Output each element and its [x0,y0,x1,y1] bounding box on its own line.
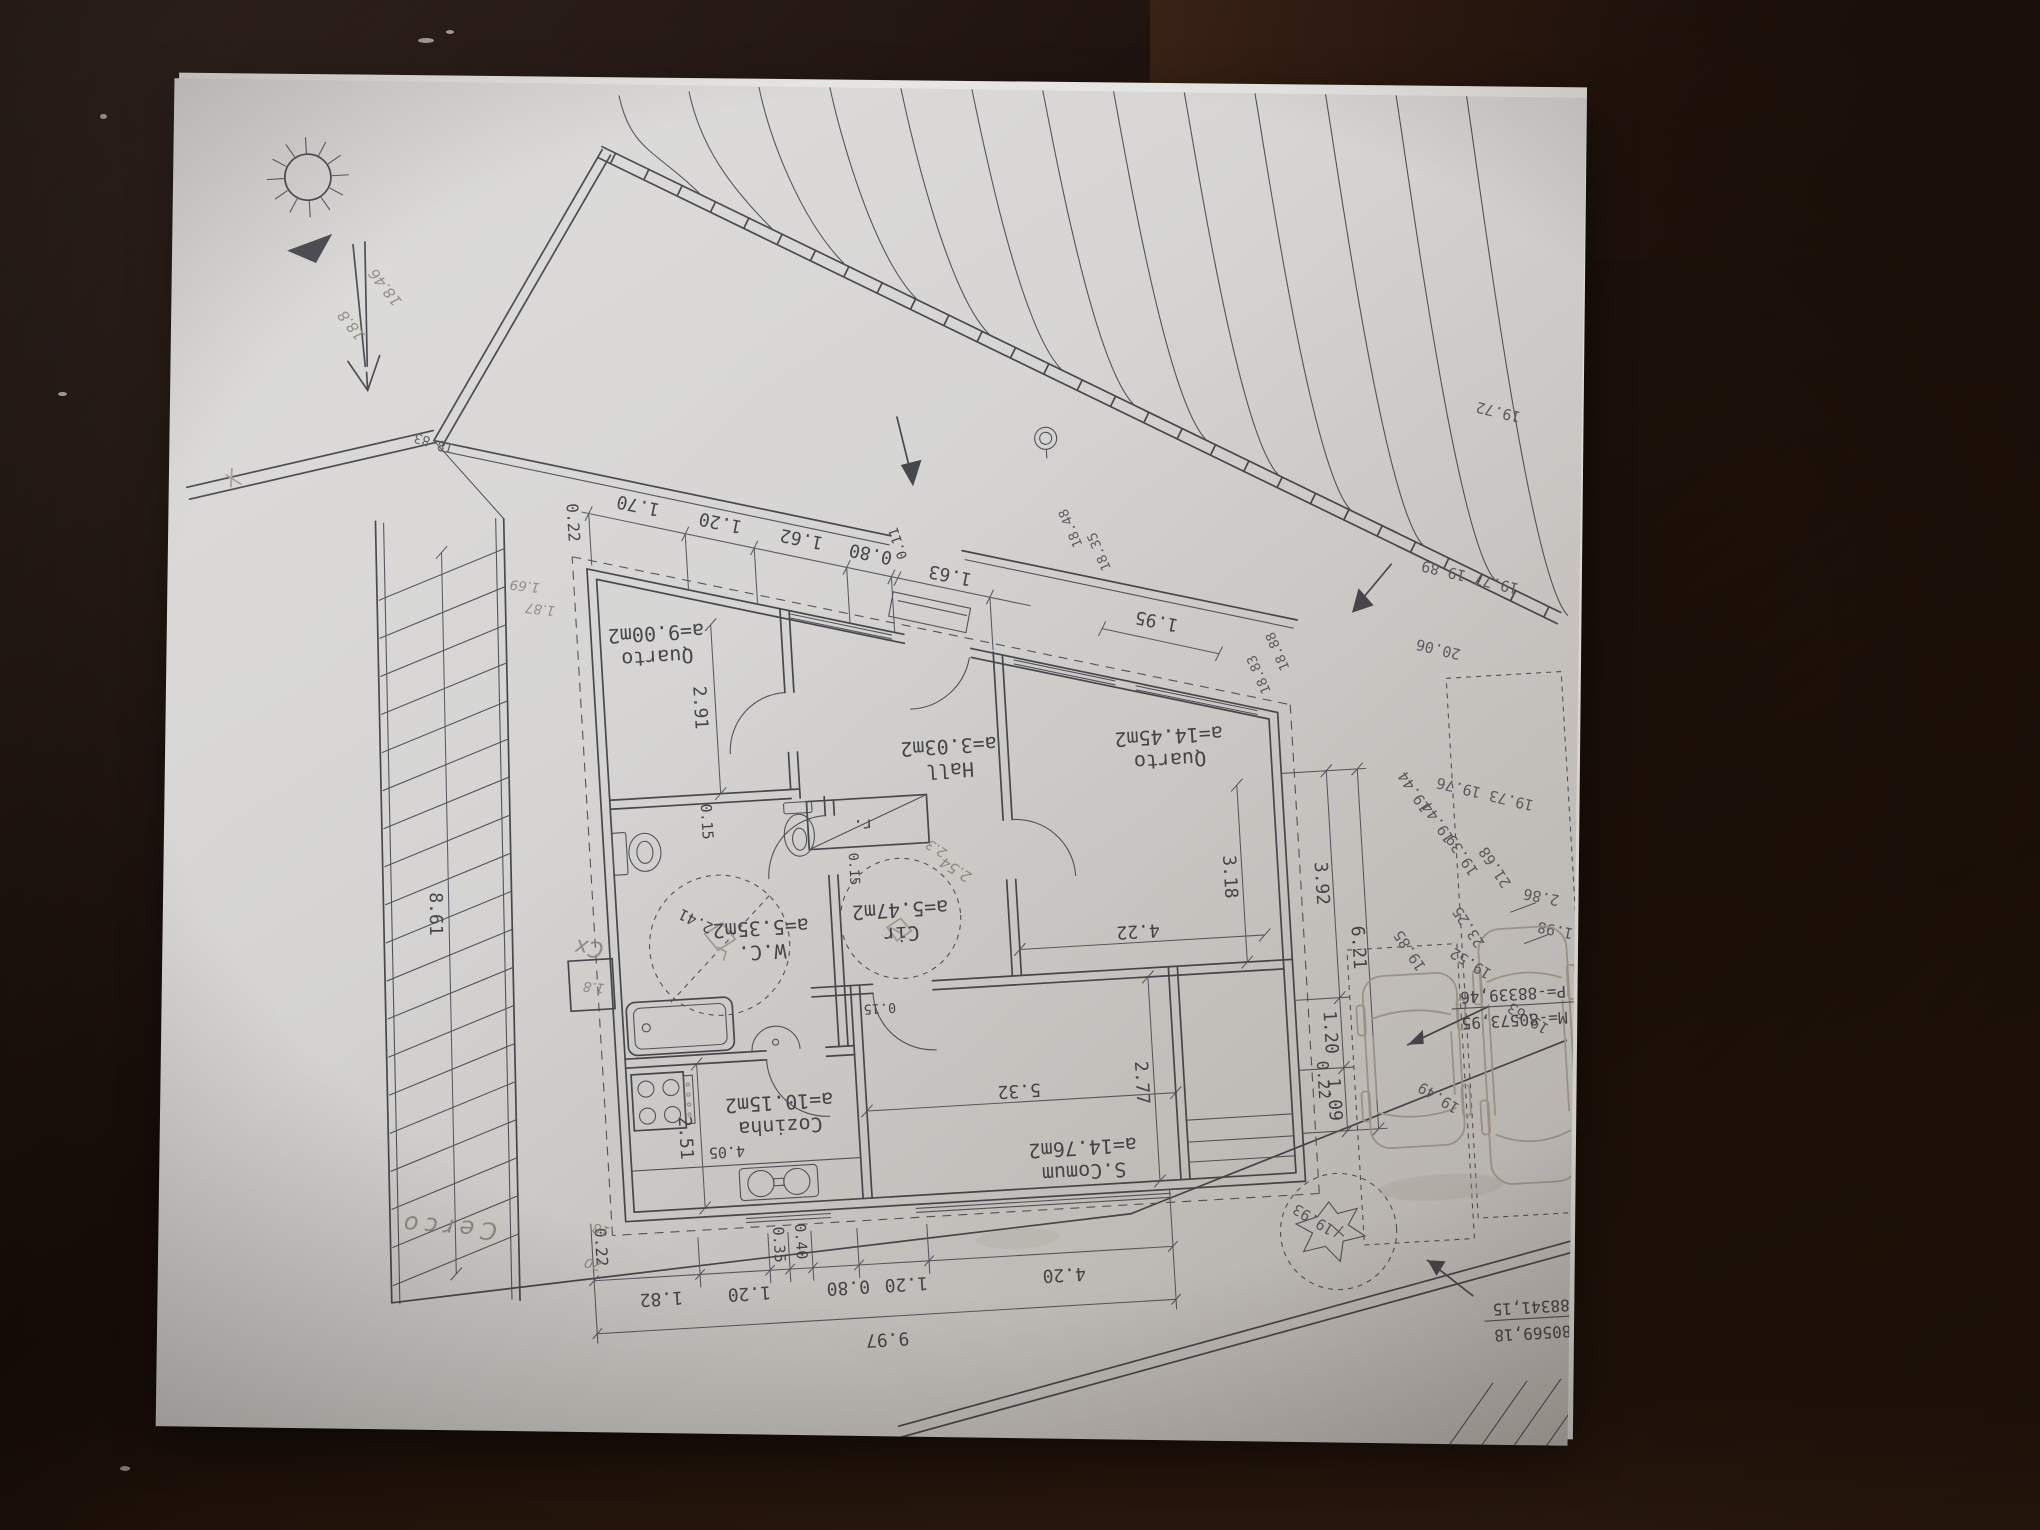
dim-label: 0.80 [847,539,894,568]
dust-speck [100,114,107,119]
survey-arrow-icon [1407,1030,1424,1045]
dim-label: 0.22 [563,503,584,543]
room-name: Quarto [621,643,695,671]
pencil-label: 1.69 [509,576,541,595]
level-label: 18.46 [365,265,406,310]
room-area: a=3.03m2 [900,732,998,762]
room-area: a=14.45m2 [1114,721,1224,751]
level-label: 19.73 19.76 [1435,773,1536,814]
room-name: Cozinha [738,1112,824,1141]
dim-label: 6.21 [1347,925,1371,970]
room-name: W.C. [737,939,787,966]
level-label: 19.52 [1447,944,1495,983]
dim-label: 0.15 [845,852,863,885]
dim-label: 5.32 [997,1079,1042,1103]
dim-label: 1.20 [697,508,744,537]
room-labels: a=9.00m2 Quarto a=3.03m2 Hall a=5.35m2 W… [607,588,1249,1210]
bathtub-icon [626,997,735,1056]
dim-label: 1.95 [1133,606,1180,635]
dimension-lines [543,451,1570,1344]
dim-label: 9.97 [865,1327,910,1351]
car-icon [1355,971,1473,1149]
photo-scene: 1.70 1.20 1.62 0.80 0.11 1.63 1.95 0.22 … [0,0,2040,1530]
dim-label: 4.05 [708,1142,745,1162]
dim-label: 0.15 [697,803,717,840]
dim-label: 0.15 [863,999,896,1017]
dust-speck [58,392,67,396]
dim-label: 4.20 [1042,1263,1087,1287]
dim-label: 0.80 [826,1275,871,1299]
dim-label: 1.70 [615,490,662,519]
room-area: a=5.35m2 [712,913,810,943]
survey-marker-icon [1034,427,1058,459]
level-label: 18.35 [1084,530,1115,574]
dim-label: 3.18 [1218,855,1242,900]
level-label: 19.72 [1474,398,1522,426]
pencil-label: 18 [591,1219,612,1239]
blueprint-paper: 1.70 1.20 1.62 0.80 0.11 1.63 1.95 0.22 … [156,78,1587,1446]
boundary-marker-icon [286,234,334,265]
pencil-label: 1.8 [582,978,605,996]
dim-label: 0.35 [769,1226,789,1263]
sun-icon [264,135,351,220]
dust-speck [446,30,454,34]
dust-speck [120,1466,130,1471]
pencil-label: 1.87 [524,599,556,618]
dim-label: 1.82 [639,1287,684,1311]
dim-label: 3.92 [1310,861,1334,906]
level-label: 18.88 [1263,629,1294,673]
doors [721,582,1089,1121]
level-label: 18.48 [1056,506,1087,550]
dim-label: 1.20 [884,1272,929,1296]
dim-label: 2.91 [688,685,712,730]
dim-label: 4.22 [1116,919,1161,943]
survey-coordinates: P=-88339,46 M=-80573,95 P=-88341,15 M=-8… [1405,981,1587,1349]
level-label: 20.06 [1414,635,1462,663]
closet-label: r. [853,815,873,835]
double-sink-icon [739,1164,819,1201]
room-name: Hall [925,757,975,784]
dim-label: 0.40 [791,1223,811,1260]
dim-label: 8.61 [425,892,446,936]
dim-label: 1.62 [778,524,825,553]
level-label: 19.93 [1290,1200,1338,1239]
pencil-label: Cx [573,933,605,961]
room-name: Cir [883,921,921,947]
dust-speck [418,38,434,43]
dim-label: 2.77 [1130,1060,1154,1105]
room-name: Quarto [1133,746,1207,774]
level-label: 23.25 [1449,903,1489,951]
room-area: a=5.47m2 [851,895,949,925]
corner-hatch-lines [1423,1373,1586,1446]
washbasin-icon [751,1025,800,1052]
floor-plan-drawing: 1.70 1.20 1.62 0.80 0.11 1.63 1.95 0.22 … [156,78,1587,1446]
level-label: 19.85 [1390,927,1430,975]
dim-label: 2.51 [674,1116,698,1161]
level-label: 21.68 [1475,843,1515,891]
dim-label: 2.41 [676,905,716,937]
dim-label: 1.20 [1318,1010,1342,1055]
room-name: S.Comum [1041,1157,1127,1186]
pencil-smudge [1379,1171,1505,1204]
entry-arrow-icon [1349,564,1394,612]
street-hatch-ticks [610,100,1549,671]
dim-label: 0.22 [1313,1060,1334,1100]
dim-label: 1.20 [727,1281,772,1305]
level-label: 18.83 [1244,653,1275,697]
terrain-contour-lines [619,78,1568,670]
level-label: 19.77 19.89 [1420,557,1521,598]
entry-arrow-icon [897,416,923,487]
toilet-icon [612,830,662,875]
pencil-smudge [975,1226,1060,1251]
level-label: 18.8 [334,307,369,344]
